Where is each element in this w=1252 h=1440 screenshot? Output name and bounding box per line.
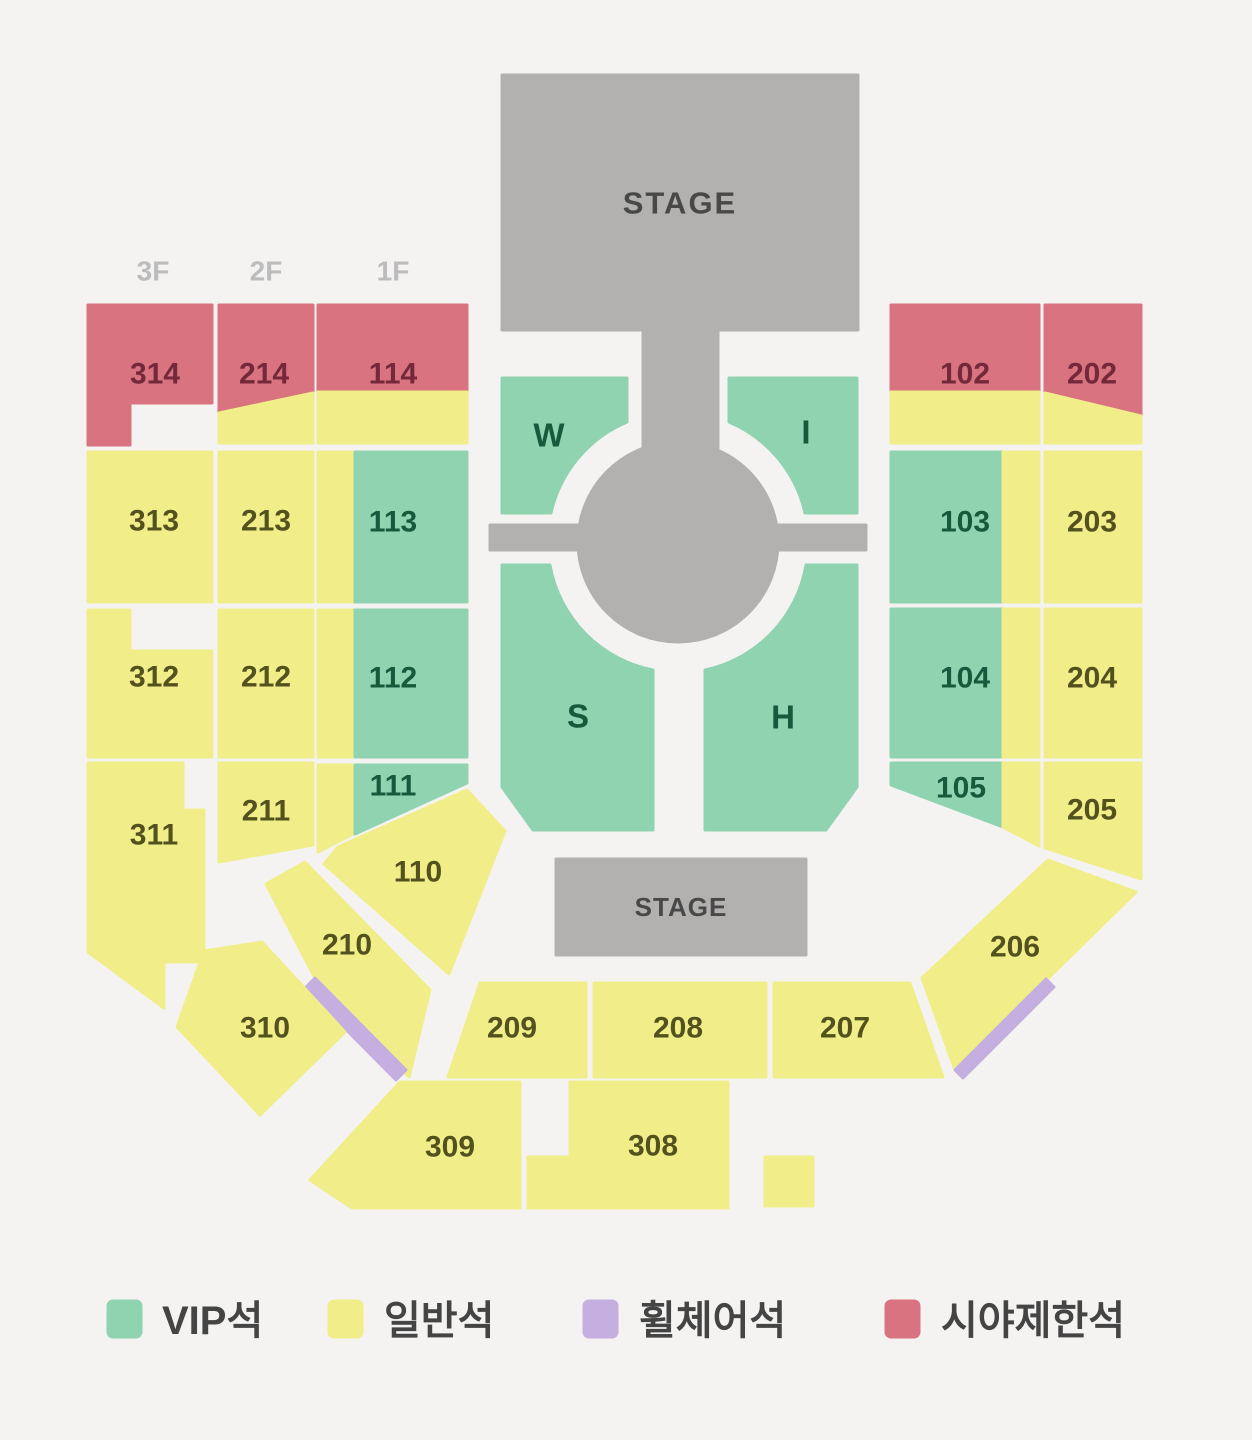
section-308[interactable]: 308 [528, 1082, 813, 1208]
section-112-label: 112 [369, 662, 417, 695]
section-308-label: 308 [628, 1130, 678, 1163]
stage-bottom: STAGE [556, 859, 806, 955]
section-113-label: 113 [369, 506, 417, 539]
section-102[interactable]: 102 [891, 305, 1039, 443]
section-203-label: 203 [1067, 506, 1117, 539]
section-s-label: S [567, 698, 589, 735]
section-314-label: 314 [130, 358, 180, 391]
section-203[interactable]: 203 [1045, 452, 1141, 602]
legend-swatch-vip [107, 1300, 142, 1338]
section-211-label: 211 [242, 795, 290, 828]
section-205-label: 205 [1067, 794, 1117, 827]
section-313-label: 313 [129, 505, 179, 538]
legend: VIP석 일반석 휠체어석 시야제한석 [107, 1299, 1125, 1343]
section-314[interactable]: 314 [88, 305, 212, 445]
section-211[interactable]: 211 [219, 763, 313, 862]
legend-label-general: 일반석 [384, 1299, 494, 1343]
section-309[interactable]: 309 [310, 1082, 520, 1208]
section-214-label: 214 [239, 358, 289, 391]
section-102-label: 102 [940, 358, 990, 391]
section-213[interactable]: 213 [219, 452, 313, 602]
section-312[interactable]: 312 [88, 610, 212, 757]
section-310-label: 310 [240, 1012, 290, 1045]
section-202-label: 202 [1067, 358, 1117, 391]
section-311-label: 311 [130, 819, 178, 852]
section-209[interactable]: 209 [448, 983, 586, 1077]
section-w-label: W [533, 417, 565, 454]
legend-swatch-restricted [885, 1300, 920, 1338]
section-309-label: 309 [425, 1131, 475, 1164]
section-204[interactable]: 204 [1045, 609, 1141, 757]
section-309-shape[interactable] [310, 1082, 520, 1208]
section-213-label: 213 [241, 505, 291, 538]
section-206[interactable]: 206 [922, 860, 1136, 1078]
section-209-label: 209 [487, 1012, 537, 1045]
section-208[interactable]: 208 [594, 983, 766, 1077]
legend-label-wheelchair: 휠체어석 [639, 1299, 786, 1343]
floor-label-1f: 1F [377, 256, 410, 287]
floor-label-2f: 2F [250, 256, 283, 287]
legend-swatch-wheelchair [583, 1300, 618, 1338]
section-312-label: 312 [129, 661, 179, 694]
section-110-label: 110 [394, 856, 442, 889]
section-308-annex-block[interactable] [765, 1157, 813, 1206]
section-113[interactable]: 113 [318, 452, 467, 602]
section-103[interactable]: 103 [891, 452, 1039, 602]
section-114-label: 114 [369, 358, 418, 391]
stage-bottom-label: STAGE [635, 892, 728, 922]
section-210-label: 210 [322, 929, 372, 962]
section-204-label: 204 [1067, 662, 1117, 695]
section-206-label: 206 [990, 931, 1040, 964]
section-104[interactable]: 104 [891, 609, 1039, 757]
section-h-label: H [771, 699, 795, 736]
section-105-label: 105 [936, 772, 986, 805]
stage-top-label: STAGE [623, 186, 738, 221]
seat-map: 3F 2F 1F STAGE W I S H 314 214 114 [0, 0, 1252, 1440]
section-205[interactable]: 205 [1045, 763, 1141, 879]
section-103-general-strip[interactable] [1003, 452, 1039, 602]
section-311-shape[interactable] [88, 763, 204, 1008]
section-311[interactable]: 311 [88, 763, 204, 1008]
legend-label-vip: VIP석 [162, 1299, 263, 1343]
section-105[interactable]: 105 [891, 763, 1039, 846]
section-104-general-strip[interactable] [1003, 609, 1039, 757]
section-214[interactable]: 214 [219, 305, 313, 443]
section-111-general-strip[interactable] [318, 765, 355, 852]
section-114-general-shape[interactable] [318, 392, 467, 443]
section-111-label: 111 [370, 770, 417, 803]
section-114[interactable]: 114 [318, 305, 467, 443]
stage-cross-bar [490, 525, 866, 550]
section-212-label: 212 [241, 661, 291, 694]
section-112-general-strip[interactable] [318, 610, 355, 757]
section-103-label: 103 [940, 506, 990, 539]
floor-labels: 3F 2F 1F [137, 256, 410, 287]
section-113-general-strip[interactable] [318, 452, 355, 602]
section-202[interactable]: 202 [1045, 305, 1141, 443]
section-102-general-shape[interactable] [891, 392, 1039, 443]
legend-swatch-general [328, 1300, 363, 1338]
section-i-label: I [801, 414, 810, 451]
stage-top: STAGE [490, 75, 866, 642]
section-104-label: 104 [940, 662, 990, 695]
section-212[interactable]: 212 [219, 610, 313, 757]
section-207[interactable]: 207 [774, 983, 943, 1077]
section-207-label: 207 [820, 1012, 870, 1045]
legend-label-restricted: 시야제한석 [941, 1299, 1125, 1343]
floor-label-3f: 3F [137, 256, 170, 287]
section-206-shape[interactable] [922, 860, 1136, 1070]
section-313[interactable]: 313 [88, 452, 212, 602]
section-208-label: 208 [653, 1012, 703, 1045]
section-112[interactable]: 112 [318, 610, 467, 757]
section-105-general-strip[interactable] [1003, 763, 1039, 846]
